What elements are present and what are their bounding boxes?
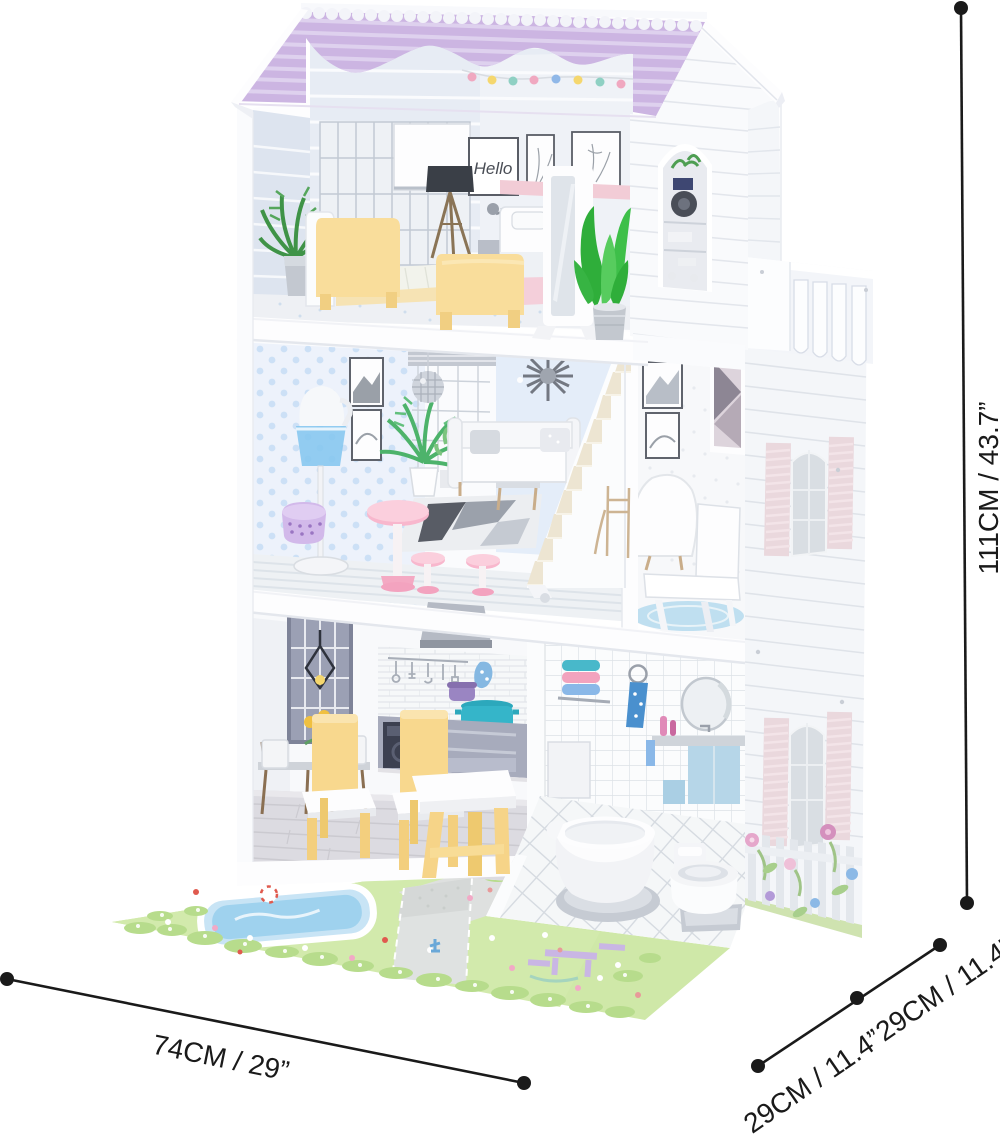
svg-text:111CM / 43.7”: 111CM / 43.7” — [973, 401, 1000, 574]
svg-text:Hello: Hello — [474, 159, 513, 178]
